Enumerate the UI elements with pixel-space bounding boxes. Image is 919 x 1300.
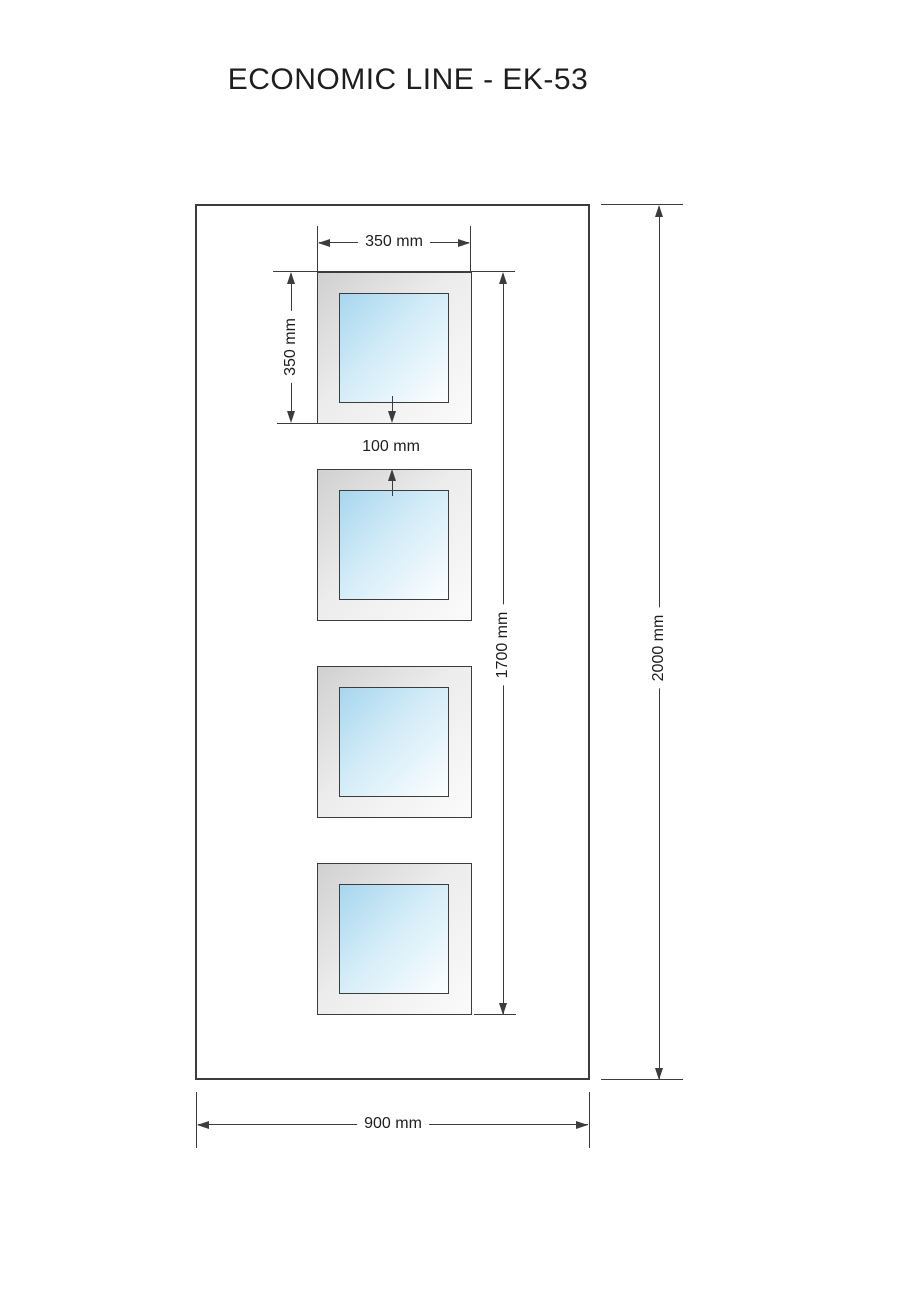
page-title: ECONOMIC LINE - EK-53	[228, 63, 589, 97]
window-frame	[317, 272, 472, 424]
ext-line-door-bottom	[601, 1079, 683, 1080]
dim-label-glazing-span: 1700 mm	[493, 605, 513, 686]
arrow-down-icon	[287, 411, 295, 423]
ext-line-door-top	[601, 204, 683, 205]
arrow-up-icon	[388, 469, 396, 481]
dim-label-door-width: 900 mm	[357, 1114, 429, 1134]
arrow-up-icon	[287, 272, 295, 284]
dim-line-gap-upper	[392, 396, 393, 412]
window-glass	[339, 687, 449, 797]
ext-line-window-left	[317, 226, 318, 271]
dim-line-gap-lower	[392, 481, 393, 496]
arrow-up-icon	[499, 272, 507, 284]
arrow-left-icon	[197, 1121, 209, 1129]
ext-line-glazing-bottom	[474, 1014, 516, 1015]
arrow-left-icon	[318, 239, 330, 247]
arrow-down-icon	[499, 1003, 507, 1015]
ext-line-window-right	[470, 226, 471, 271]
window-glass	[339, 490, 449, 600]
window-frame	[317, 863, 472, 1015]
dim-label-gap: 100 mm	[355, 437, 427, 457]
window-frame	[317, 666, 472, 818]
ext-line-door-left	[196, 1092, 197, 1148]
arrow-up-icon	[655, 205, 663, 217]
arrow-right-icon	[576, 1121, 588, 1129]
dim-label-door-height: 2000 mm	[649, 608, 669, 689]
ext-line-window-bottom	[277, 423, 317, 424]
arrow-right-icon	[458, 239, 470, 247]
window-glass	[339, 293, 449, 403]
arrow-down-icon	[655, 1068, 663, 1080]
door-specification-drawing: ECONOMIC LINE - EK-53 350 mm 350 mm 100 …	[0, 0, 919, 1300]
dim-label-window-width: 350 mm	[358, 232, 430, 252]
arrow-down-icon	[388, 411, 396, 423]
window-glass	[339, 884, 449, 994]
ext-line-door-right	[589, 1092, 590, 1148]
window-frame	[317, 469, 472, 621]
dim-label-window-height: 350 mm	[281, 311, 301, 383]
ext-line-glazing-top	[273, 271, 515, 272]
